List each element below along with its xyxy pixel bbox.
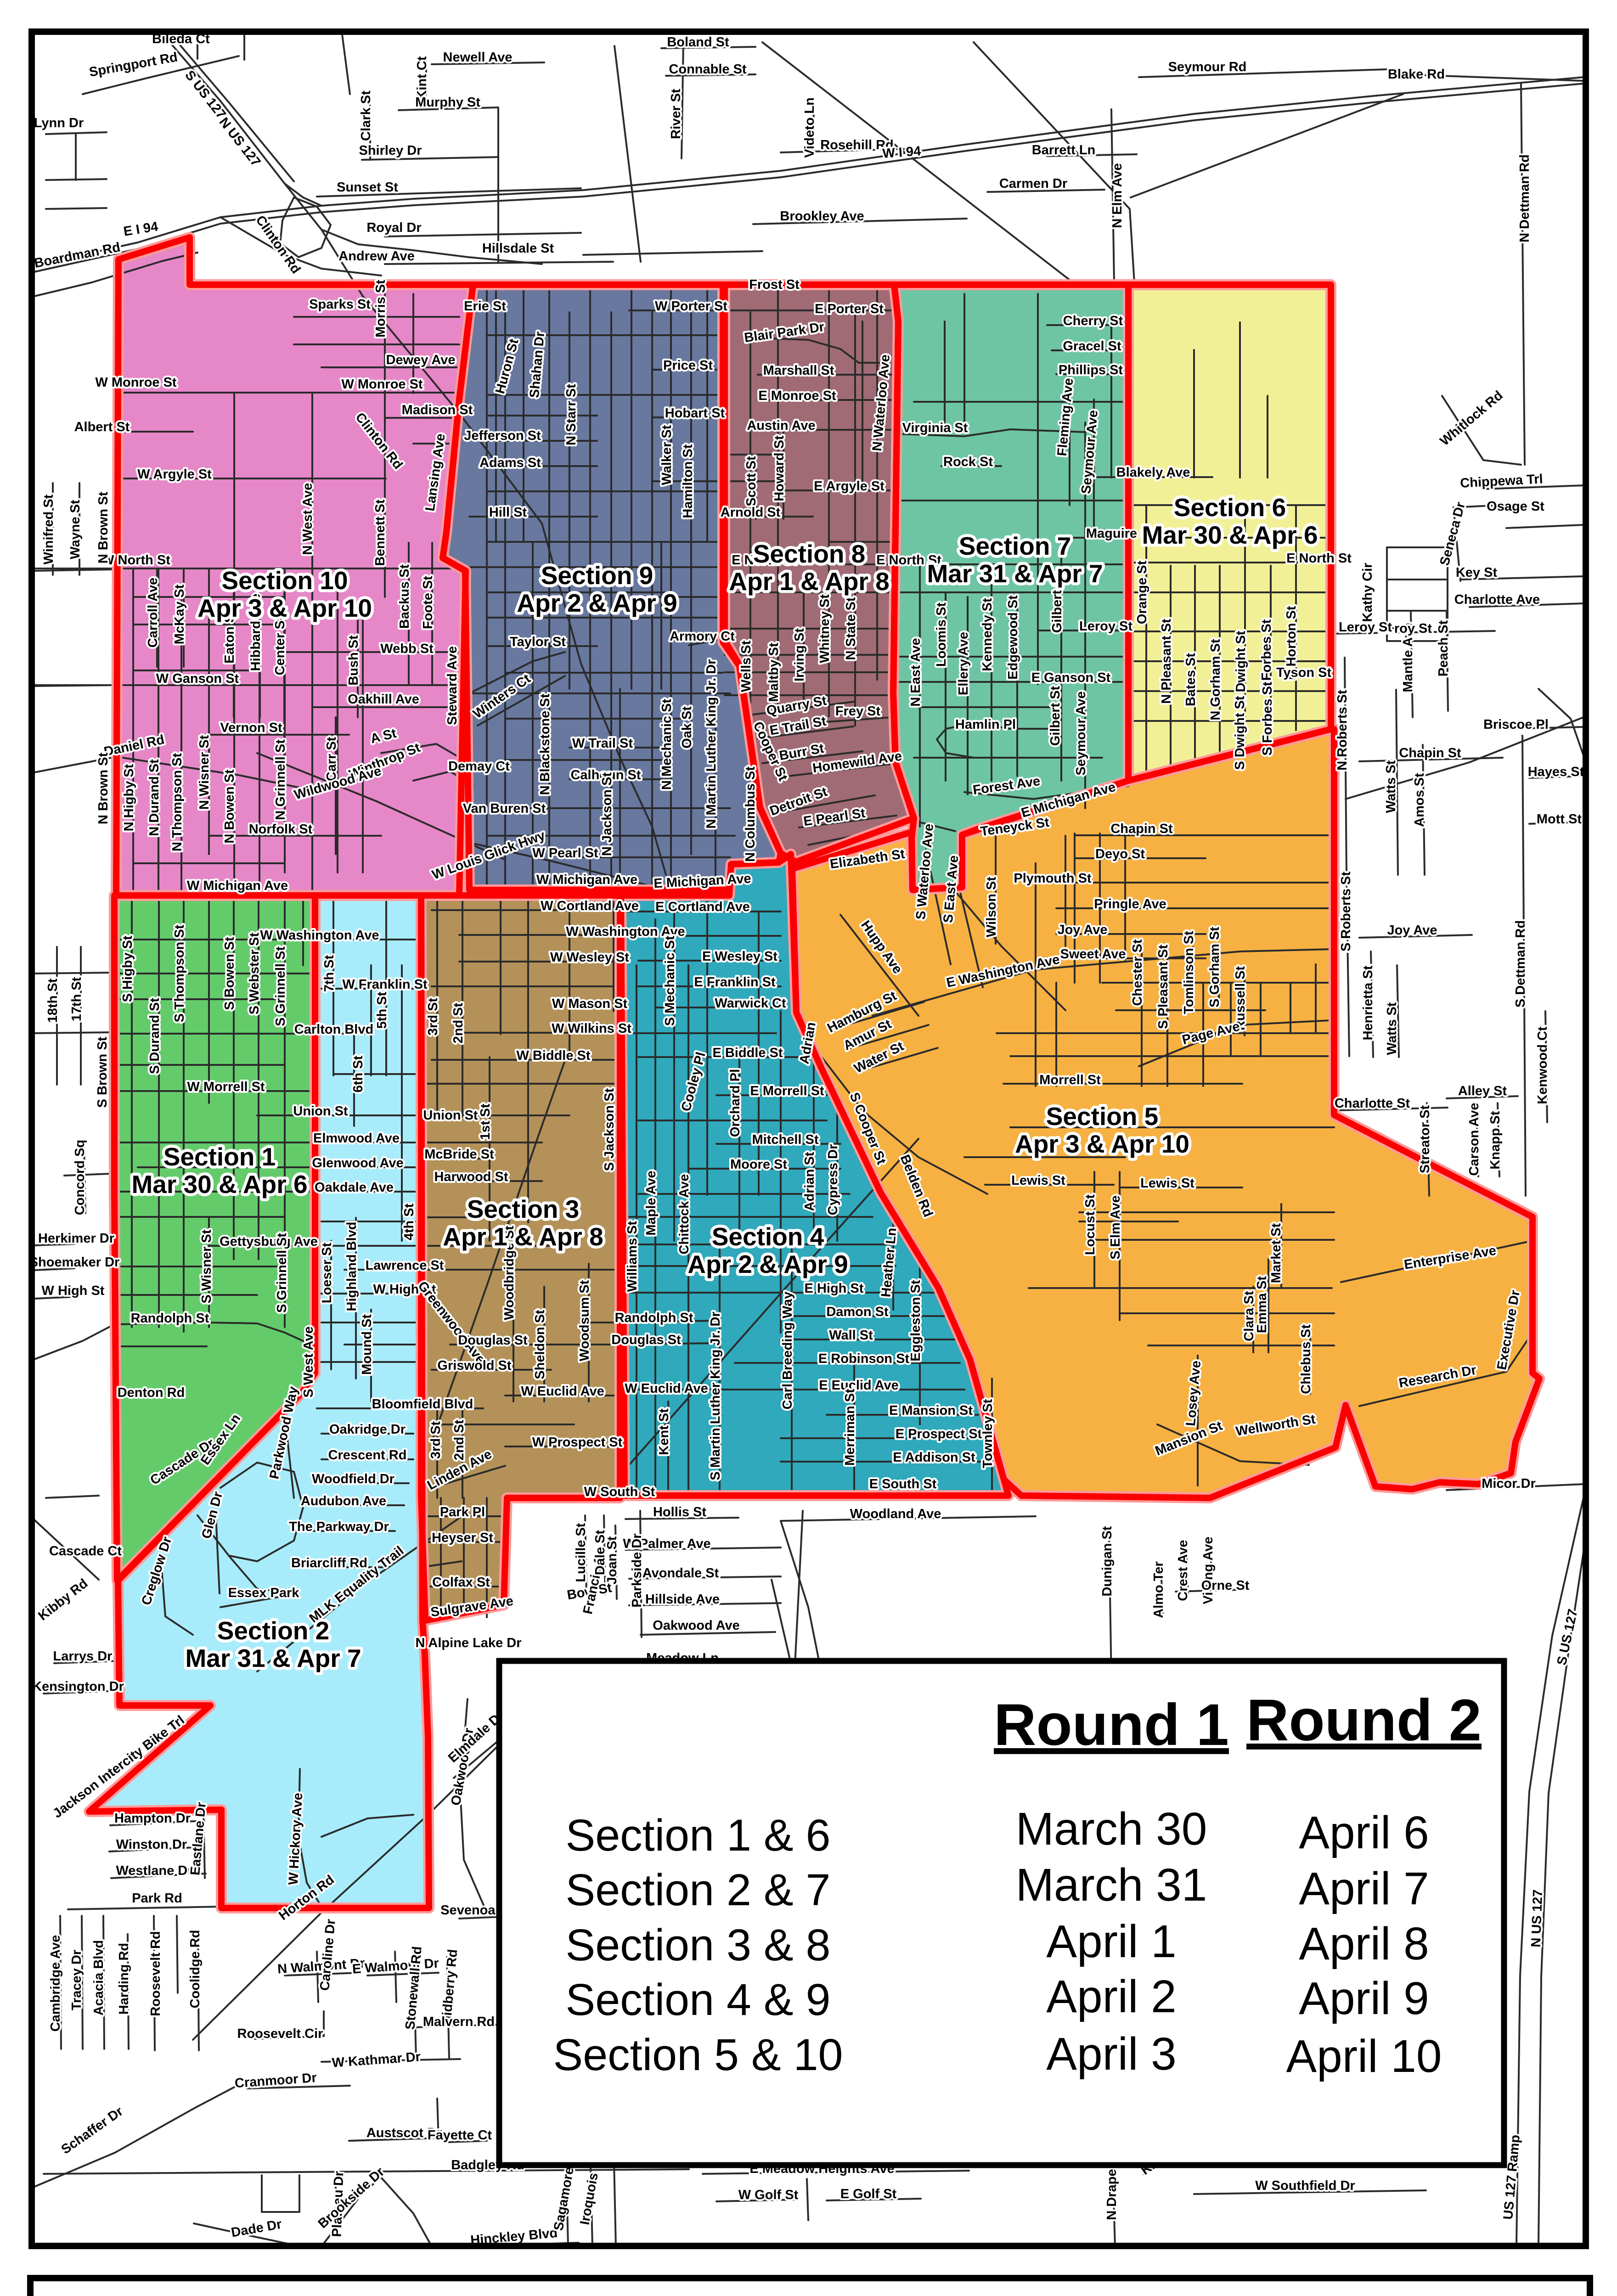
svg-text:Union St: Union St (423, 1108, 478, 1123)
svg-text:Virginia St: Virginia St (902, 421, 968, 435)
svg-text:N Dwight St: N Dwight St (1234, 630, 1248, 705)
svg-text:April 1: April 1 (1046, 1916, 1176, 1967)
svg-text:5th St: 5th St (375, 991, 389, 1029)
svg-text:Leroy St: Leroy St (1339, 620, 1392, 635)
svg-text:2nd St: 2nd St (451, 1002, 466, 1043)
svg-text:Dewey Ave: Dewey Ave (386, 353, 456, 367)
svg-text:Section 4: Section 4 (712, 1222, 824, 1251)
svg-text:S Grinnell St: S Grinnell St (275, 1233, 289, 1313)
svg-text:Colfax St: Colfax St (432, 1575, 490, 1590)
svg-text:E Franklin St: E Franklin St (694, 975, 776, 990)
svg-text:E High St: E High St (805, 1281, 864, 1296)
svg-text:Webb St: Webb St (380, 642, 434, 656)
svg-text:E Wesley St: E Wesley St (702, 949, 778, 964)
svg-text:Carr St: Carr St (324, 737, 339, 781)
svg-text:Crescent Rd: Crescent Rd (328, 1448, 407, 1463)
svg-text:Kensington Dr: Kensington Dr (32, 1679, 124, 1694)
svg-text:Shoemaker Dr: Shoemaker Dr (29, 1255, 120, 1270)
svg-text:Randolph St: Randolph St (615, 1311, 693, 1325)
svg-text:Essex Park: Essex Park (228, 1586, 300, 1600)
svg-text:W Prospect St: W Prospect St (532, 1435, 623, 1450)
svg-text:Section 10: Section 10 (221, 566, 348, 595)
svg-text:Hobart St: Hobart St (665, 406, 725, 421)
svg-text:Newell Ave: Newell Ave (443, 50, 513, 65)
svg-text:Westlane Dr: Westlane Dr (116, 1863, 192, 1878)
svg-text:March 30: March 30 (1016, 1803, 1207, 1855)
svg-text:Hamilton St: Hamilton St (681, 444, 695, 518)
svg-text:Moore St: Moore St (730, 1157, 787, 1172)
svg-text:N Higby St: N Higby St (122, 764, 136, 831)
svg-text:Center St: Center St (273, 616, 287, 675)
svg-text:Howard St: Howard St (772, 435, 787, 501)
svg-text:1st St: 1st St (478, 1103, 493, 1140)
svg-text:S Thompson St: S Thompson St (172, 924, 187, 1022)
svg-text:Joy Ave: Joy Ave (1057, 923, 1107, 937)
svg-text:Mar 31 & Apr 7: Mar 31 & Apr 7 (185, 1644, 361, 1672)
svg-text:E Addison St: E Addison St (893, 1450, 975, 1465)
svg-text:Douglas St: Douglas St (611, 1333, 681, 1347)
svg-text:S Dwight St: S Dwight St (1233, 696, 1247, 770)
svg-text:Boland St: Boland St (667, 35, 729, 50)
svg-text:Backus St: Backus St (397, 564, 412, 629)
svg-text:Cherry St: Cherry St (1063, 314, 1123, 328)
svg-text:Charlotte Ave: Charlotte Ave (1454, 592, 1540, 607)
svg-text:Lucille St: Lucille St (574, 1523, 588, 1582)
svg-text:Tyson St: Tyson St (1276, 665, 1332, 680)
svg-text:W South St: W South St (584, 1485, 655, 1499)
svg-text:Section 1 & 6: Section 1 & 6 (566, 1810, 831, 1860)
svg-text:Market St: Market St (1269, 1223, 1284, 1283)
svg-text:Streator St: Streator St (1418, 1105, 1432, 1174)
svg-text:Charlotte St: Charlotte St (1335, 1096, 1410, 1111)
svg-text:W Wesley St: W Wesley St (550, 950, 629, 965)
svg-text:S Martin Luther King Jr. Dr: S Martin Luther King Jr. Dr (708, 1311, 723, 1480)
svg-text:Woodland Ave: Woodland Ave (850, 1507, 941, 1521)
svg-text:N State St: N State St (844, 597, 858, 660)
svg-text:Winston Dr: Winston Dr (116, 1837, 187, 1852)
svg-text:W Mason St: W Mason St (552, 996, 628, 1011)
svg-text:Wells St: Wells St (739, 641, 754, 692)
svg-text:Shirley Dr: Shirley Dr (359, 143, 422, 158)
svg-text:Bates St: Bates St (1183, 653, 1198, 706)
svg-text:Hamlin Pl: Hamlin Pl (955, 717, 1016, 732)
svg-text:Blake Rd: Blake Rd (1388, 67, 1445, 82)
svg-text:S Pleasant St: S Pleasant St (1156, 945, 1171, 1029)
svg-text:Seymour Rd: Seymour Rd (1168, 60, 1247, 74)
svg-text:Amos St: Amos St (1412, 773, 1427, 827)
svg-text:Sparks St: Sparks St (309, 297, 371, 312)
svg-text:W Golf St: W Golf St (738, 2188, 799, 2202)
svg-text:Tracey Dr: Tracey Dr (69, 1950, 84, 2010)
svg-text:River St: River St (669, 89, 683, 139)
svg-text:Royal Dr: Royal Dr (366, 220, 421, 235)
svg-text:Park Pl: Park Pl (440, 1505, 485, 1519)
svg-text:Rock St: Rock St (943, 455, 993, 469)
svg-text:Seymour Ave: Seymour Ave (1074, 691, 1088, 775)
svg-text:E Mansion St: E Mansion St (889, 1403, 973, 1418)
svg-text:Apr 1 & Apr 8: Apr 1 & Apr 8 (443, 1222, 603, 1251)
svg-text:Heyser St: Heyser St (432, 1531, 493, 1545)
svg-text:Taylor St: Taylor St (510, 635, 566, 649)
svg-text:E South St: E South St (869, 1477, 937, 1491)
svg-text:Elmwood Ave: Elmwood Ave (313, 1131, 400, 1146)
svg-text:Randolph St: Randolph St (131, 1311, 209, 1326)
svg-text:W Porter St: W Porter St (655, 299, 727, 314)
svg-text:Mound St: Mound St (360, 1314, 374, 1375)
svg-text:Section 3: Section 3 (467, 1195, 580, 1223)
svg-text:E Prospect St: E Prospect St (896, 1427, 982, 1441)
svg-text:Kint Ct: Kint Ct (415, 56, 429, 100)
svg-text:W North St: W North St (101, 553, 170, 568)
svg-text:N Gorham St: N Gorham St (1208, 639, 1223, 720)
svg-text:W Trail St: W Trail St (572, 736, 633, 751)
svg-text:W Monroe St: W Monroe St (341, 377, 423, 392)
svg-text:McKay St: McKay St (172, 584, 187, 644)
svg-text:Park Rd: Park Rd (132, 1891, 182, 1906)
svg-text:Maltby St: Maltby St (766, 642, 781, 702)
svg-text:Gilbert St: Gilbert St (1048, 686, 1063, 746)
svg-text:April 3: April 3 (1046, 2028, 1176, 2080)
svg-text:N Brown St: N Brown St (96, 753, 111, 825)
svg-text:Erie St: Erie St (464, 299, 506, 314)
svg-text:Orne St: Orne St (1201, 1578, 1250, 1593)
svg-text:Jefferson St: Jefferson St (464, 428, 541, 443)
svg-text:N Blackstone St: N Blackstone St (538, 693, 552, 795)
svg-text:Price St: Price St (663, 358, 713, 373)
svg-text:Demay Ct: Demay Ct (448, 759, 510, 774)
svg-text:Wall St: Wall St (829, 1328, 873, 1343)
svg-text:N Grinnell St: N Grinnell St (273, 739, 288, 820)
svg-text:N Bowen St: N Bowen St (222, 769, 237, 843)
svg-text:Section 6: Section 6 (1174, 493, 1286, 522)
svg-text:Scott St: Scott St (744, 456, 759, 506)
svg-text:W High St: W High St (42, 1283, 105, 1298)
svg-text:Chapin St: Chapin St (1110, 822, 1173, 836)
svg-text:E Ganson St: E Ganson St (1031, 670, 1111, 685)
svg-text:Concord Sq: Concord Sq (73, 1140, 87, 1215)
svg-text:Gracel St: Gracel St (1063, 339, 1121, 354)
svg-text:Locust St: Locust St (1083, 1194, 1098, 1255)
svg-text:W Cortland Ave: W Cortland Ave (541, 899, 639, 913)
svg-text:Watts St: Watts St (1385, 1002, 1399, 1055)
svg-text:Sweet Ave: Sweet Ave (1060, 947, 1126, 962)
svg-text:S Higby St: S Higby St (120, 935, 135, 1002)
svg-text:N Dettman Rd: N Dettman Rd (1517, 154, 1532, 242)
svg-text:Irving St: Irving St (792, 628, 807, 681)
svg-text:Round 2: Round 2 (1246, 1688, 1482, 1753)
svg-text:Chlebus St: Chlebus St (1299, 1324, 1313, 1394)
svg-text:S Grinnell St: S Grinnell St (273, 946, 288, 1026)
svg-text:S Elm Ave: S Elm Ave (1108, 1195, 1123, 1260)
svg-text:Whitney St: Whitney St (817, 594, 832, 663)
svg-text:Crest Ave: Crest Ave (1176, 1540, 1190, 1601)
svg-text:Section 9: Section 9 (541, 561, 654, 590)
svg-text:N East Ave: N East Ave (908, 638, 923, 706)
svg-text:The Parkway Dr: The Parkway Dr (289, 1519, 389, 1534)
svg-text:Section 2 & 7: Section 2 & 7 (566, 1865, 831, 1915)
svg-text:Apr 2 & Apr 9: Apr 2 & Apr 9 (687, 1250, 848, 1278)
svg-text:N Pleasant St: N Pleasant St (1159, 619, 1174, 704)
svg-text:Bush St: Bush St (346, 635, 361, 686)
svg-text:Lynn Dr: Lynn Dr (34, 116, 84, 130)
svg-text:Alley St: Alley St (1458, 1084, 1507, 1098)
svg-text:W Euclid Ave: W Euclid Ave (625, 1381, 708, 1396)
svg-text:7th St: 7th St (322, 955, 337, 992)
svg-text:Deyo St: Deyo St (1095, 847, 1145, 861)
svg-text:Chester St: Chester St (1130, 939, 1145, 1006)
svg-text:Hill St: Hill St (489, 505, 527, 520)
svg-text:E North St: E North St (1286, 551, 1352, 566)
svg-text:N Wisner St: N Wisner St (197, 735, 212, 810)
svg-text:N Starr St: N Starr St (564, 384, 579, 445)
svg-text:Orchard Pl: Orchard Pl (728, 1069, 743, 1137)
svg-text:Walker St: Walker St (659, 425, 674, 485)
svg-text:Clark St: Clark St (359, 90, 373, 141)
svg-text:Almo Ter: Almo Ter (1151, 1561, 1166, 1618)
svg-text:Peach St: Peach St (1436, 620, 1451, 676)
svg-text:Wayne St: Wayne St (68, 500, 83, 559)
svg-text:N Roberts St: N Roberts St (1335, 690, 1350, 771)
svg-text:Chittock Ave: Chittock Ave (677, 1174, 692, 1254)
svg-text:N Elm Ave: N Elm Ave (1110, 163, 1125, 228)
svg-text:Hollis St: Hollis St (653, 1505, 706, 1519)
svg-text:Woodsum St: Woodsum St (577, 1280, 592, 1361)
svg-text:Merriman St: Merriman St (843, 1389, 857, 1466)
svg-text:Eggleston St: Eggleston St (908, 1280, 923, 1362)
svg-text:Frey St: Frey St (835, 704, 881, 719)
svg-text:S Durand St: S Durand St (147, 998, 162, 1074)
svg-text:Malvern Rd: Malvern Rd (423, 2015, 495, 2029)
svg-text:S West Ave: S West Ave (301, 1326, 316, 1397)
svg-text:W Morrell St: W Morrell St (187, 1080, 265, 1094)
svg-text:6th St: 6th St (351, 1055, 366, 1092)
svg-text:W Euclid Ave: W Euclid Ave (521, 1384, 604, 1399)
svg-text:N Jackson St: N Jackson St (600, 772, 614, 856)
svg-text:Pringle Ave: Pringle Ave (1094, 897, 1166, 912)
svg-text:Vernon St: Vernon St (220, 720, 282, 735)
svg-text:E Monroe St: E Monroe St (758, 388, 836, 403)
svg-text:N West Ave: N West Ave (300, 483, 315, 555)
svg-text:Van Buren St: Van Buren St (463, 801, 546, 816)
svg-text:S Bowen St: S Bowen St (222, 937, 237, 1010)
svg-text:Cascade Ct: Cascade Ct (49, 1544, 122, 1559)
svg-text:W Michigan Ave: W Michigan Ave (536, 872, 637, 887)
svg-text:N Durand St: N Durand St (147, 759, 162, 836)
svg-text:Sheldon St: Sheldon St (533, 1310, 547, 1379)
svg-text:Oakdale Ave: Oakdale Ave (315, 1180, 394, 1195)
svg-text:Gettysburg Ave: Gettysburg Ave (220, 1234, 318, 1249)
svg-text:Hampton Dr: Hampton Dr (114, 1811, 191, 1826)
svg-text:E Argyle St: E Argyle St (814, 479, 885, 494)
svg-text:Glenwood Ave: Glenwood Ave (312, 1156, 403, 1171)
svg-text:E Morrell St: E Morrell St (750, 1084, 824, 1098)
svg-text:April 2: April 2 (1046, 1971, 1176, 2022)
svg-text:Highland Blvd: Highland Blvd (344, 1222, 359, 1311)
svg-text:W Argyle St: W Argyle St (137, 467, 212, 482)
svg-text:Apr 3 & Apr 10: Apr 3 & Apr 10 (1015, 1130, 1189, 1158)
svg-text:Andrew Ave: Andrew Ave (338, 249, 414, 264)
svg-text:Section 7: Section 7 (959, 532, 1071, 560)
svg-text:Armory Ct: Armory Ct (670, 629, 735, 644)
svg-text:Section 8: Section 8 (753, 540, 866, 568)
svg-text:Kennedy St: Kennedy St (980, 598, 995, 671)
svg-text:Vining Ave: Vining Ave (1201, 1536, 1216, 1604)
svg-text:Ellery Ave: Ellery Ave (956, 632, 971, 695)
svg-text:Briarcliff Rd: Briarcliff Rd (291, 1556, 367, 1570)
svg-text:W Monroe St: W Monroe St (95, 375, 177, 390)
svg-text:Lewis St: Lewis St (1140, 1176, 1194, 1191)
svg-text:April 6: April 6 (1299, 1807, 1429, 1858)
svg-text:Carson Ave: Carson Ave (1467, 1103, 1482, 1176)
svg-text:Briscoe Pl: Briscoe Pl (1483, 717, 1549, 732)
svg-text:Avondale St: Avondale St (642, 1566, 719, 1581)
svg-text:Carl Breeding Way: Carl Breeding Way (780, 1292, 795, 1410)
svg-text:Tomlinson St: Tomlinson St (1182, 931, 1196, 1014)
svg-text:Apr 2 & Apr 9: Apr 2 & Apr 9 (517, 589, 677, 617)
svg-text:Williams St: Williams St (625, 1221, 640, 1292)
svg-text:April 7: April 7 (1299, 1863, 1429, 1914)
svg-text:Oakhill Ave: Oakhill Ave (348, 692, 419, 707)
svg-text:Norfolk St: Norfolk St (249, 822, 313, 837)
svg-text:Henrietta St: Henrietta St (1361, 965, 1375, 1040)
svg-text:Cypress Dr: Cypress Dr (826, 1144, 840, 1216)
svg-text:Wilson St: Wilson St (984, 877, 999, 937)
svg-text:Knapp St: Knapp St (1488, 1111, 1503, 1170)
svg-text:Mar 31 & Apr 7: Mar 31 & Apr 7 (927, 559, 1103, 588)
svg-text:W Michigan Ave: W Michigan Ave (187, 878, 288, 893)
svg-text:Joan St: Joan St (605, 1536, 620, 1584)
svg-text:Roosevelt Cir: Roosevelt Cir (237, 2026, 323, 2041)
svg-text:Mitchell St: Mitchell St (752, 1132, 818, 1147)
svg-text:Roosevelt Rd: Roosevelt Rd (148, 1931, 163, 2016)
svg-text:Lawrence St: Lawrence St (366, 1258, 444, 1273)
svg-text:N Alpine Lake Dr: N Alpine Lake Dr (416, 1636, 522, 1650)
svg-text:Section 5 & 10: Section 5 & 10 (553, 2030, 843, 2080)
svg-text:Carlton Blvd: Carlton Blvd (294, 1022, 373, 1037)
svg-text:Parkside Dr: Parkside Dr (630, 1533, 644, 1607)
svg-text:Union St: Union St (293, 1104, 348, 1119)
svg-text:E Euclid Ave: E Euclid Ave (819, 1378, 899, 1393)
svg-text:N Mechanic St: N Mechanic St (659, 699, 674, 790)
svg-text:Osage St: Osage St (1487, 499, 1544, 514)
svg-text:Barrett Ln: Barrett Ln (1032, 143, 1096, 158)
svg-text:Bloomfield Blvd: Bloomfield Blvd (372, 1397, 473, 1412)
svg-text:Morris St: Morris St (373, 280, 388, 338)
svg-text:Lewis St: Lewis St (1011, 1173, 1065, 1188)
svg-text:W Pearl St: W Pearl St (532, 846, 598, 861)
svg-text:W I 94: W I 94 (882, 144, 921, 161)
svg-text:S Gorham St: S Gorham St (1207, 927, 1222, 1007)
svg-text:W Southfield Dr: W Southfield Dr (1255, 2178, 1355, 2193)
svg-text:Kent St: Kent St (657, 1408, 671, 1455)
svg-text:April 8: April 8 (1299, 1918, 1429, 1970)
svg-text:Mar 30 & Apr 6: Mar 30 & Apr 6 (131, 1170, 307, 1199)
svg-text:Brookley Ave: Brookley Ave (780, 209, 864, 224)
svg-text:Leroy St: Leroy St (1079, 619, 1132, 634)
svg-text:Connable St: Connable St (669, 62, 747, 77)
svg-text:Herkimer Dr: Herkimer Dr (38, 1231, 114, 1246)
svg-text:Maple Ave: Maple Ave (644, 1171, 659, 1235)
svg-text:3rd St: 3rd St (428, 1421, 443, 1459)
svg-text:W Franklin St: W Franklin St (342, 977, 428, 992)
svg-text:Woodfield Dr: Woodfield Dr (312, 1472, 394, 1486)
svg-text:E Robinson St: E Robinson St (818, 1351, 910, 1366)
svg-text:Phillips St: Phillips St (1059, 363, 1123, 377)
svg-text:Emma St: Emma St (1255, 1276, 1269, 1333)
svg-text:Mott St: Mott St (1537, 812, 1582, 827)
svg-text:April 10: April 10 (1286, 2031, 1442, 2082)
svg-text:Loomis St: Loomis St (934, 602, 949, 667)
svg-text:Joy Ave: Joy Ave (1387, 923, 1437, 938)
svg-text:E Porter St: E Porter St (815, 302, 884, 316)
svg-text:Videto Ln: Videto Ln (802, 97, 817, 158)
svg-text:17th St: 17th St (69, 977, 84, 1021)
svg-text:Denton Rd: Denton Rd (118, 1385, 185, 1400)
svg-text:Bennett St: Bennett St (373, 499, 388, 566)
svg-text:W Biddle St: W Biddle St (516, 1048, 590, 1063)
svg-text:E Biddle St: E Biddle St (712, 1046, 783, 1060)
svg-text:Damon St: Damon St (826, 1305, 889, 1319)
svg-text:Warwick Ct: Warwick Ct (715, 996, 786, 1011)
svg-text:Blakely Ave: Blakely Ave (1116, 465, 1190, 480)
svg-text:Sunset St: Sunset St (337, 180, 398, 195)
svg-text:E Golf St: E Golf St (840, 2187, 897, 2201)
svg-text:Micor Dr: Micor Dr (1482, 1476, 1536, 1491)
svg-text:S Roberts St: S Roberts St (1339, 872, 1353, 951)
svg-text:Carmen Dr: Carmen Dr (999, 176, 1067, 191)
svg-text:Apr 1 & Apr 8: Apr 1 & Apr 8 (729, 567, 889, 596)
svg-text:N Martin Luther King Jr. Dr: N Martin Luther King Jr. Dr (704, 659, 719, 829)
svg-text:Orange St: Orange St (1135, 560, 1149, 624)
svg-text:Harwood St: Harwood St (434, 1170, 508, 1184)
svg-text:Acacia Blvd: Acacia Blvd (91, 1940, 106, 2015)
svg-text:N US 127: N US 127 (1529, 1889, 1545, 1947)
svg-text:Douglas St: Douglas St (458, 1333, 528, 1348)
svg-text:Kathy Cir: Kathy Cir (1360, 563, 1375, 622)
svg-text:Frost St: Frost St (749, 277, 800, 292)
svg-text:Section 4 & 9: Section 4 & 9 (566, 1975, 831, 2025)
svg-text:Larrys Dr: Larrys Dr (53, 1649, 113, 1664)
svg-text:Madison St: Madison St (402, 403, 473, 417)
svg-text:Hayes St: Hayes St (1528, 765, 1584, 779)
svg-text:Key St: Key St (1456, 565, 1498, 580)
svg-text:Kenwood Ct: Kenwood Ct (1535, 1026, 1550, 1104)
svg-text:Hillside Ave: Hillside Ave (645, 1592, 720, 1607)
svg-text:Oak St: Oak St (680, 706, 694, 748)
svg-text:S Brown St: S Brown St (95, 1036, 110, 1108)
svg-text:18th St: 18th St (45, 978, 60, 1023)
svg-text:Apr 3 & Apr 10: Apr 3 & Apr 10 (197, 594, 372, 622)
svg-text:Oakwood Ave: Oakwood Ave (653, 1618, 740, 1633)
svg-text:Section 1: Section 1 (163, 1142, 276, 1171)
svg-text:W Washington Ave: W Washington Ave (260, 928, 379, 943)
svg-text:Adams St: Adams St (479, 456, 541, 470)
svg-text:Steward Ave: Steward Ave (445, 646, 460, 725)
svg-text:Adrian St: Adrian St (802, 1152, 817, 1211)
svg-text:Audubon Ave: Audubon Ave (301, 1494, 386, 1508)
svg-text:Round 1: Round 1 (994, 1692, 1229, 1758)
svg-text:Chapin St: Chapin St (1399, 746, 1461, 760)
svg-text:Marshall St: Marshall St (763, 363, 834, 378)
svg-text:Carroll Ave: Carroll Ave (146, 578, 160, 648)
svg-text:Morrell St: Morrell St (1039, 1073, 1101, 1087)
svg-text:Albert St: Albert St (74, 420, 130, 434)
svg-text:Section 3 & 8: Section 3 & 8 (566, 1920, 831, 1970)
svg-text:Oakridge Dr: Oakridge Dr (329, 1422, 406, 1437)
svg-text:Loeser St: Loeser St (320, 1243, 334, 1303)
svg-text:S Jackson St: S Jackson St (602, 1088, 617, 1171)
svg-text:Plymouth St: Plymouth St (1014, 871, 1092, 886)
